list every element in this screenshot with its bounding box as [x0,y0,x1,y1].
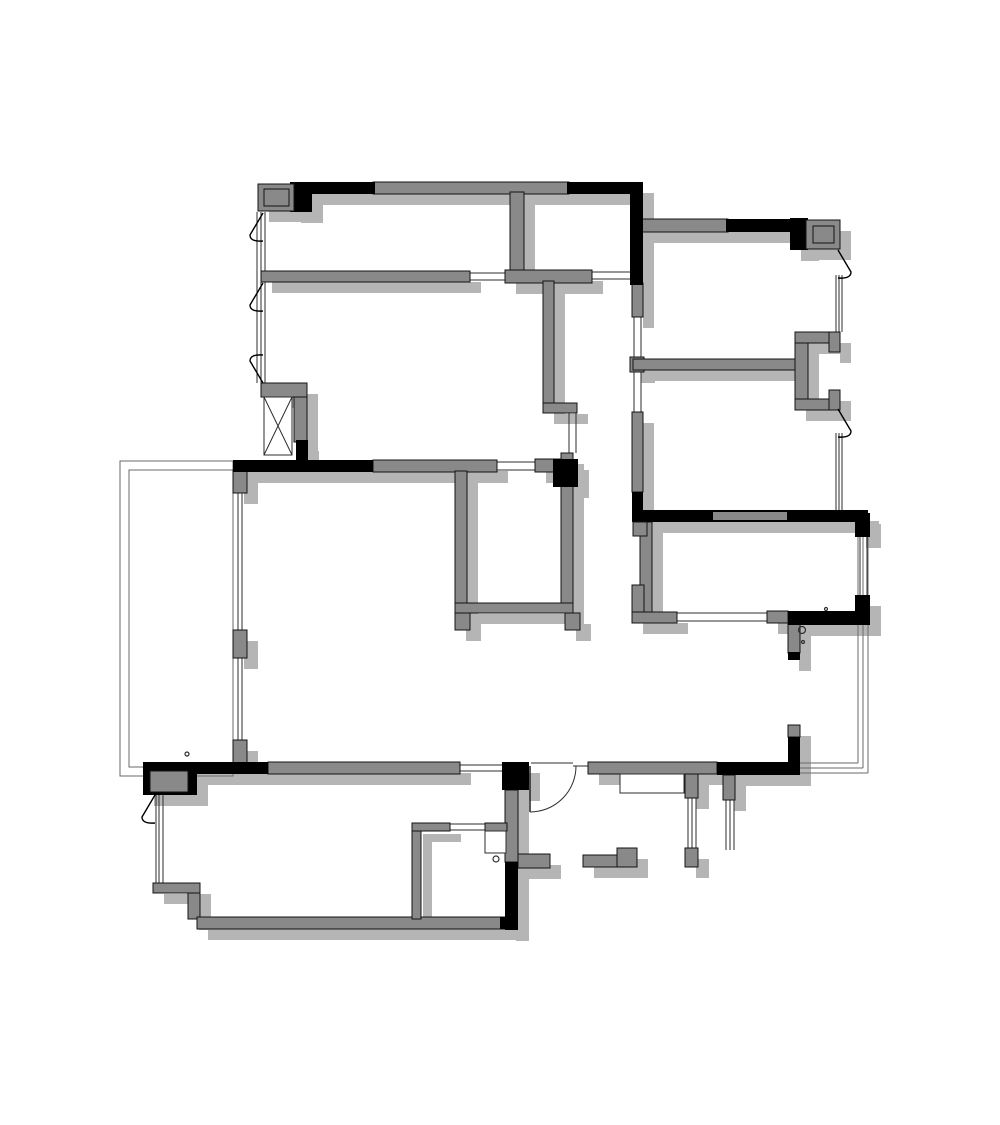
casement-window-flag-icon [142,795,155,823]
wall-gray [455,603,573,613]
wall-black [505,862,518,930]
wall-shadow [799,663,811,671]
wall-black [632,492,643,512]
wall-shadow [384,193,580,205]
wall-gray [373,182,569,194]
wall-shadow [384,471,508,483]
wall-inset [713,512,787,520]
wall-black [788,611,868,625]
wall-gray [294,397,307,442]
column-core [813,226,834,243]
wall-shadow [643,623,688,634]
wall-gray [373,460,497,472]
wall-gray [723,775,735,800]
wall-gray [829,390,840,410]
wall-gray [583,855,617,867]
wall-gray [633,359,800,370]
wall-gray [632,612,677,623]
wall-shadow [423,834,432,930]
wall-gray [153,883,200,893]
wall-shadow [208,928,528,940]
wall-shadow [643,294,654,328]
wall-black [855,513,870,537]
wall-gray [518,854,550,868]
wall-shadow [643,423,654,503]
wall-gray [632,283,643,317]
wall-shadow [554,292,565,416]
wall-gray [588,762,717,774]
wall-gray [767,611,788,623]
wall-gray [455,471,467,603]
wall-black [502,762,529,790]
wall-gray [632,412,643,492]
column [150,771,188,792]
wall-gray [197,917,517,929]
wall-black [295,182,375,194]
wall-gray [485,823,507,831]
wall-gray [543,403,577,413]
wall-black [630,192,643,285]
wall-shadow [244,471,384,483]
drain-circle-icon [825,608,828,611]
wall-gray [455,613,470,630]
wall-gray [261,271,470,282]
wall-gray [685,774,698,798]
wall-shadow [423,834,461,842]
wall-gray [412,823,421,919]
wall-black [788,652,800,660]
wall-gray [188,893,200,919]
wall-gray [233,630,247,658]
wall-shadow [306,193,386,205]
wall-gray [641,219,728,232]
wall-gray [829,332,840,352]
wall-shadow [594,866,628,878]
floor-plan-page [0,0,1000,1125]
drain-circle-icon [493,856,499,862]
wall-black [553,459,578,487]
wall-black [296,440,308,460]
wall-shadow [644,370,811,381]
wall-black [188,762,268,774]
wall-gray [788,725,800,737]
wall-gray [233,470,247,493]
wall-shadow [799,736,811,748]
drain-circle-icon [185,752,189,756]
column [633,522,647,536]
wall-gray [795,332,808,410]
wall-gray [543,281,554,405]
balcony-outline [120,461,233,776]
wall-gray [412,823,450,831]
wall-black [717,762,800,775]
wall-gray [565,613,580,630]
wall-shadow [272,282,481,293]
wall-shadow [840,401,851,421]
wall-shadow [466,482,478,614]
wall-shadow [279,773,471,785]
wall-gray [685,848,698,867]
wall-shadow [734,786,746,811]
wall-black [790,218,808,250]
fixture-outline [620,774,684,793]
floor-plan-svg [0,0,1000,1125]
wall-shadow [199,773,279,785]
wall-gray [261,383,307,397]
wall-shadow [554,414,588,424]
wall-shadow [840,343,851,363]
wall-gray [233,740,247,763]
balcony-outline [129,470,233,767]
wall-black [233,460,373,472]
wall-shadow [799,634,811,664]
fixture-outline [485,831,506,853]
wall-gray [510,192,524,272]
wall-gray [268,762,460,774]
wall-gray [617,848,637,867]
wall-shadow [643,521,879,533]
wall-gray [788,623,800,653]
column-core [264,189,289,206]
